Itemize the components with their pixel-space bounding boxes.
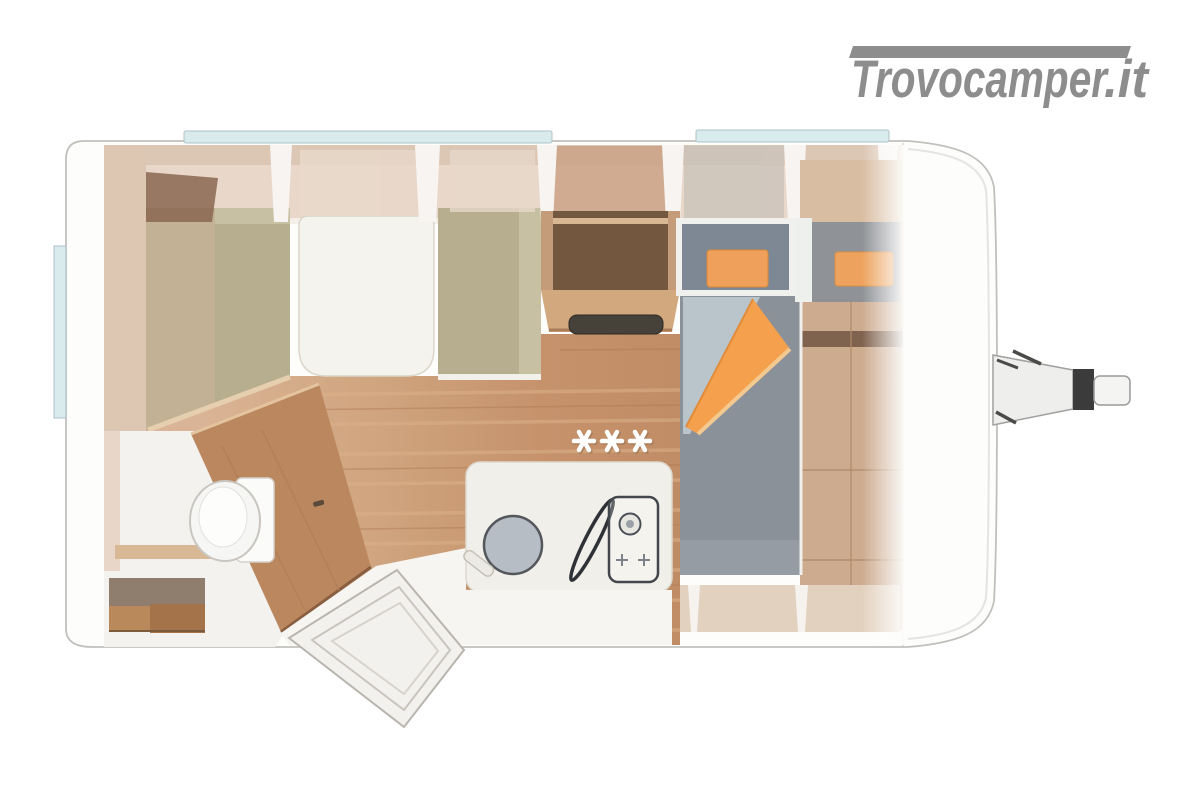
svg-text:Trovocamper: Trovocamper: [851, 50, 1110, 109]
svg-text:.it: .it: [1104, 50, 1150, 109]
